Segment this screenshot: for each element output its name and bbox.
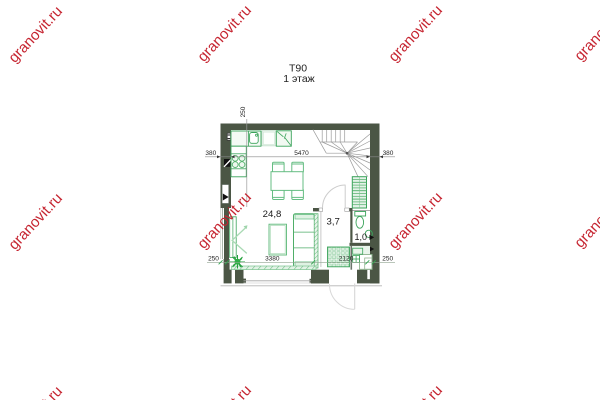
svg-text:380: 380 (205, 150, 216, 157)
svg-text:granovit.ru: granovit.ru (571, 382, 600, 400)
svg-text:granovit.ru: granovit.ru (5, 190, 66, 253)
svg-text:granovit.ru: granovit.ru (571, 1, 600, 64)
svg-text:granovit.ru: granovit.ru (5, 3, 66, 66)
svg-text:granovit.ru: granovit.ru (194, 2, 255, 65)
svg-text:24,8: 24,8 (263, 209, 282, 220)
svg-text:granovit.ru: granovit.ru (385, 382, 446, 400)
svg-text:granovit.ru: granovit.ru (385, 2, 446, 65)
svg-text:3380: 3380 (265, 256, 280, 263)
svg-text:granovit.ru: granovit.ru (5, 383, 66, 400)
svg-text:3,7: 3,7 (327, 217, 340, 228)
svg-text:granovit.ru: granovit.ru (385, 189, 446, 252)
svg-text:granovit.ru: granovit.ru (571, 188, 600, 251)
svg-text:granovit.ru: granovit.ru (194, 382, 255, 400)
svg-text:5470: 5470 (294, 150, 309, 157)
svg-text:1 этаж: 1 этаж (283, 73, 314, 85)
svg-text:250: 250 (240, 106, 247, 117)
svg-text:2120: 2120 (339, 256, 354, 263)
svg-text:250: 250 (382, 256, 393, 263)
svg-text:380: 380 (383, 150, 394, 157)
svg-text:1,0: 1,0 (354, 232, 367, 242)
svg-text:250: 250 (208, 256, 219, 263)
